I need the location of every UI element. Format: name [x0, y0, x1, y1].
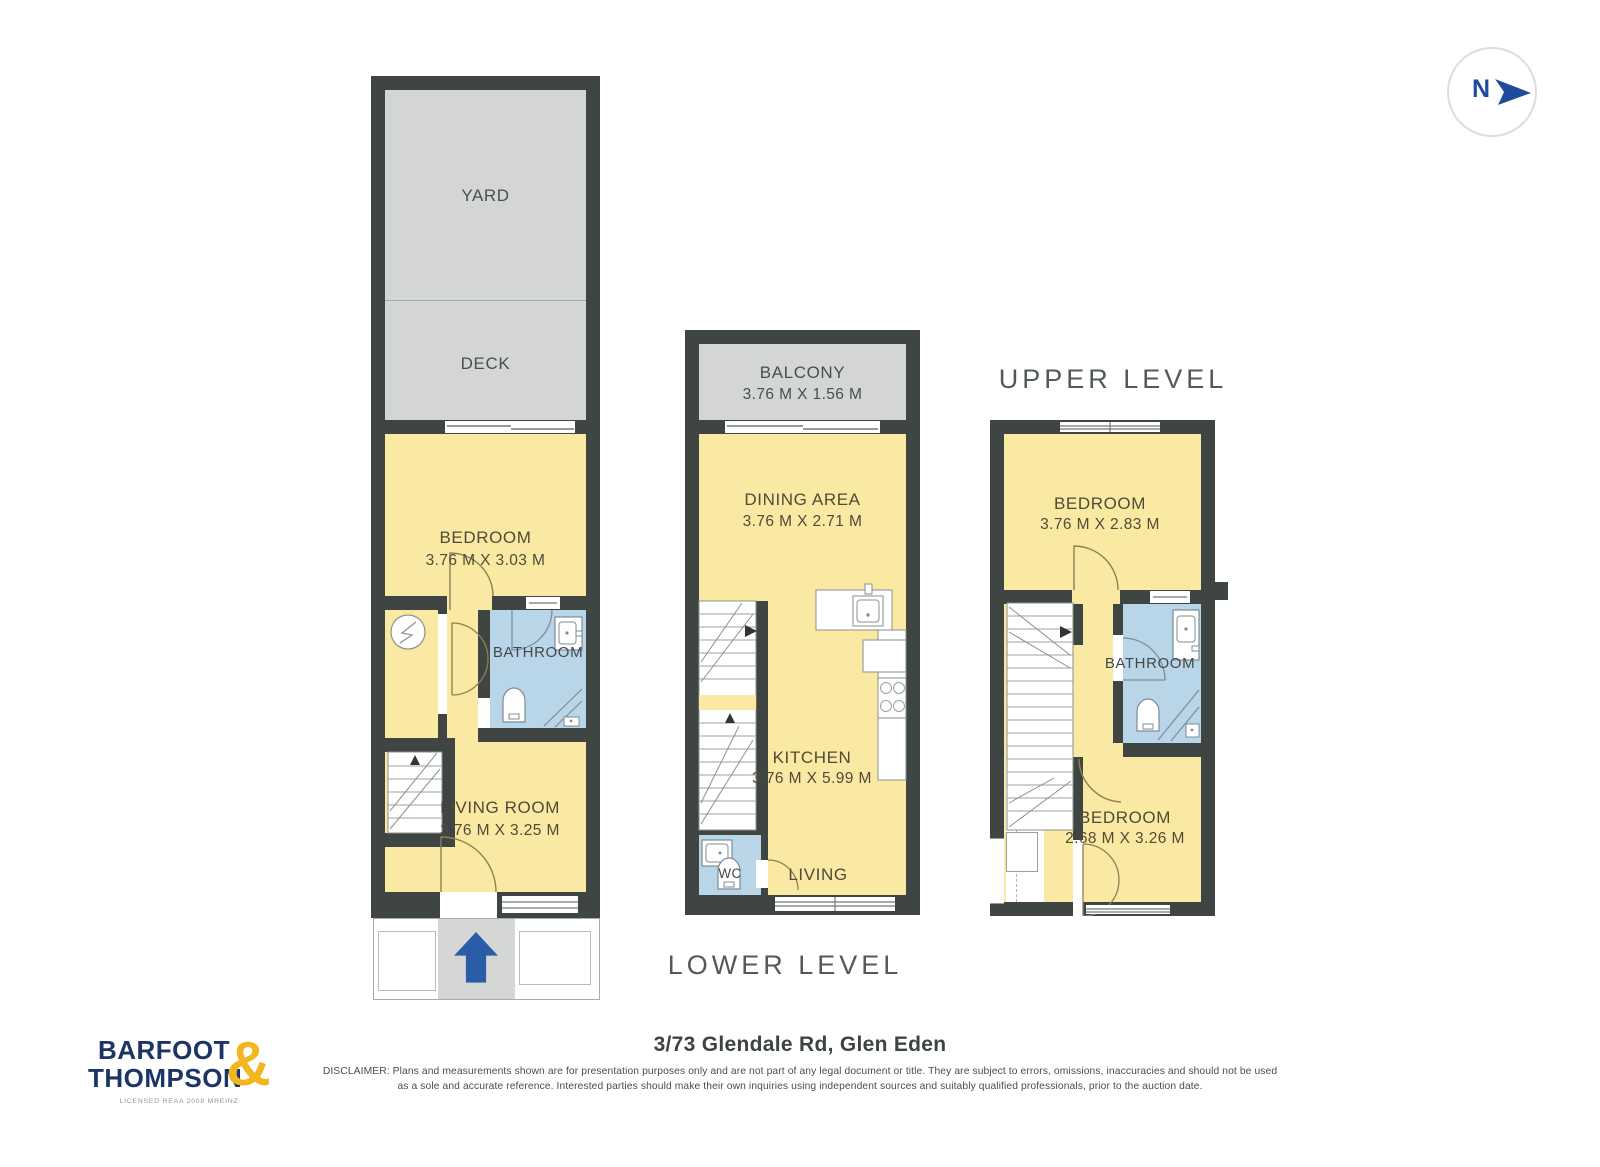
- wall-segment: [478, 728, 586, 742]
- upper-bedroom1-label: BEDROOM: [1000, 494, 1200, 514]
- wall-segment: [1123, 743, 1201, 757]
- side-window: [990, 838, 1004, 904]
- compass-north-label: N: [1472, 75, 1490, 104]
- compass-arrow-icon: [1495, 79, 1533, 107]
- entry-arrow-icon: [444, 926, 508, 992]
- living-room-dims: 3.76 M X 3.25 M: [400, 822, 600, 840]
- living-room-label: LIVING ROOM: [400, 798, 600, 818]
- kitchen-label: KITCHEN: [704, 748, 920, 768]
- wardrobe-rail: [1016, 759, 1017, 902]
- upper-level-plan: BEDROOM 3.76 M X 2.83 M BATHROOM BEDROOM…: [990, 420, 1228, 916]
- wall-segment: [438, 596, 447, 746]
- bedroom-label: BEDROOM: [371, 528, 600, 548]
- wall-segment: [478, 610, 490, 728]
- bedroom-area: [385, 434, 586, 596]
- lower-level-title: LOWER LEVEL: [635, 950, 935, 981]
- wall-segment: [385, 596, 438, 610]
- wall-stub: [1215, 582, 1228, 600]
- deck-label: DECK: [371, 354, 600, 374]
- upper-bathroom-label: BATHROOM: [1090, 655, 1210, 672]
- ground-floor-plan: YARD DECK BEDROOM 3.76 M X 3.03 M BATHRO…: [371, 76, 600, 918]
- compass: N: [1447, 47, 1537, 137]
- yard-label: YARD: [371, 186, 600, 206]
- wall-segment: [1004, 590, 1072, 604]
- wall-segment: [1113, 604, 1123, 743]
- lower-level-plan: BALCONY 3.76 M X 1.56 M DINING AREA 3.76…: [685, 330, 920, 915]
- upper-bedroom2-dims: 2.68 M X 3.26 M: [1025, 830, 1225, 848]
- porch-outline-left: [378, 931, 436, 991]
- balcony-dims: 3.76 M X 1.56 M: [685, 386, 920, 404]
- upper-bedroom1-dims: 3.76 M X 2.83 M: [1000, 516, 1200, 534]
- bathroom-area: [490, 610, 586, 728]
- entry-porch: [373, 918, 600, 1000]
- wall-segment: [492, 596, 586, 610]
- dining-label: DINING AREA: [685, 490, 920, 510]
- upper-level-title: UPPER LEVEL: [963, 364, 1263, 395]
- disclaimer-line2: as a sole and accurate reference. Intere…: [0, 1081, 1600, 1092]
- upper-bathroom-area: [1123, 604, 1201, 743]
- dining-dims: 3.76 M X 2.71 M: [685, 513, 920, 531]
- porch-outline-right: [519, 931, 591, 985]
- logo-tagline: LICENSED REAA 2008 MREINZ: [108, 1098, 250, 1105]
- kitchen-dims: 3.76 M X 5.99 M: [704, 770, 920, 788]
- property-address: 3/73 Glendale Rd, Glen Eden: [0, 1033, 1600, 1057]
- bedroom-dims: 3.76 M X 3.03 M: [371, 552, 600, 570]
- balcony-label: BALCONY: [685, 363, 920, 383]
- wall-segment: [699, 827, 761, 835]
- lower-living-label: LIVING: [743, 865, 893, 885]
- wall-segment: [1120, 590, 1201, 604]
- disclaimer-line1: DISCLAIMER: Plans and measurements shown…: [0, 1066, 1600, 1077]
- wall-segment: [1073, 603, 1083, 645]
- bathroom-label: BATHROOM: [475, 644, 601, 661]
- upper-bedroom2-label: BEDROOM: [1025, 808, 1225, 828]
- floorplan-page: N: [0, 0, 1600, 1167]
